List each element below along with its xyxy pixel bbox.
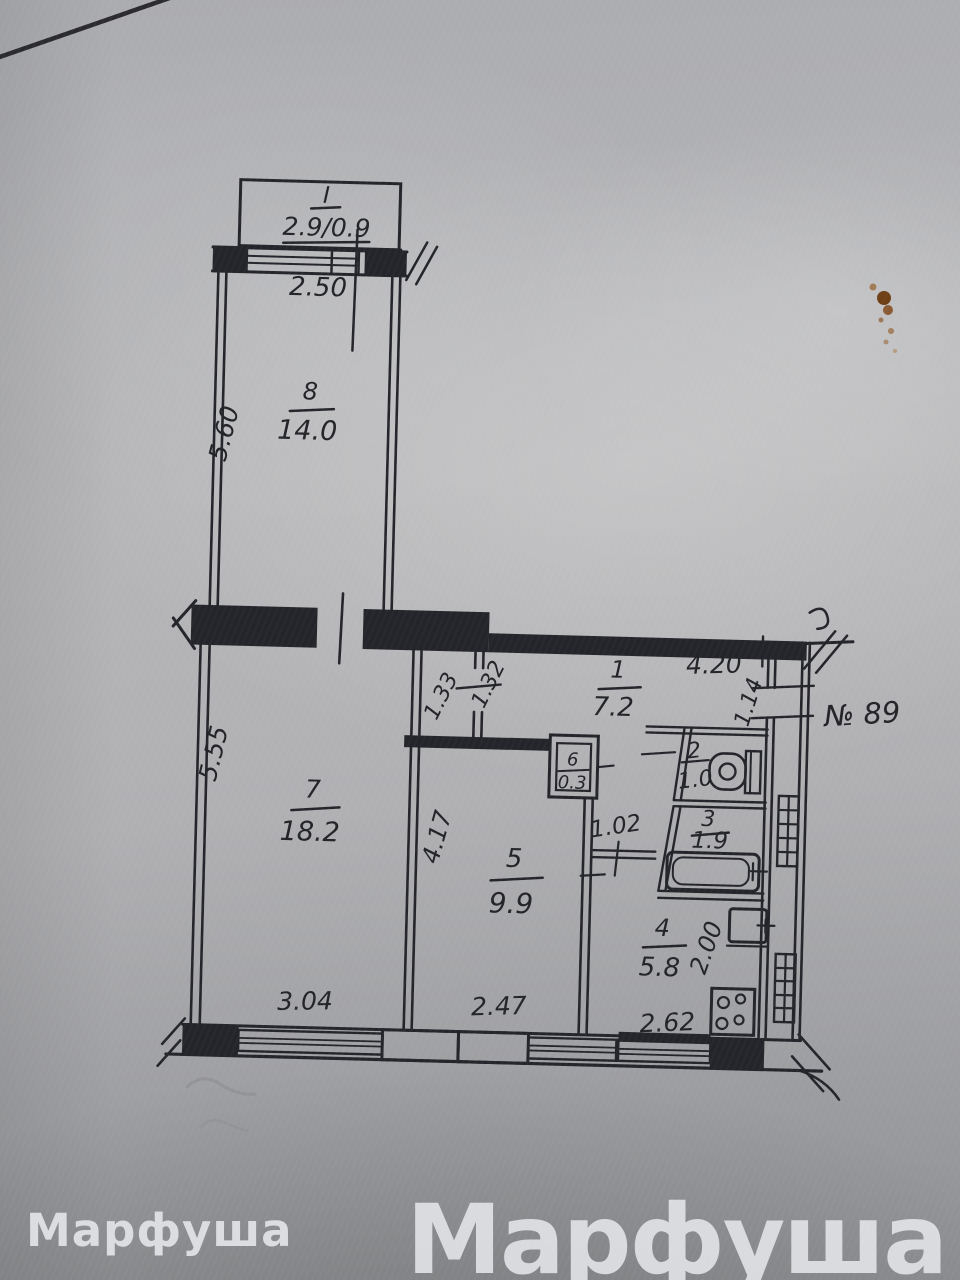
room7-bottom-dim: 3.04 xyxy=(277,986,333,1015)
closet6-number-label: 6 xyxy=(567,749,579,770)
balcony-width-label: 2.50 xyxy=(289,272,348,304)
hall-number-label: 1 xyxy=(610,655,626,683)
watermark-small: Марфуша xyxy=(26,1208,293,1253)
paper-fold-line xyxy=(0,0,184,59)
lobby-width-dim: 1.02 xyxy=(589,810,643,843)
room7-east-wall xyxy=(404,650,422,1030)
kitchen-bottom-dim: 2.62 xyxy=(639,1007,696,1038)
balcony-size-label: 2.9/0.9 xyxy=(282,212,371,243)
entry-door-dim: 1.14 xyxy=(730,675,769,729)
corridor-left-dim: 1.33 xyxy=(419,669,463,724)
middle-wall xyxy=(172,589,854,677)
outer-left-wall xyxy=(191,645,210,1025)
wc-area-label: 1.0 xyxy=(677,766,715,795)
room8-number-label: 8 xyxy=(302,377,318,405)
room7-area-label: 18.2 xyxy=(279,816,340,849)
kitchen-inner-dim: 2.00 xyxy=(684,918,728,978)
room5-area-label: 9.9 xyxy=(488,886,533,920)
hall-area-label: 7.2 xyxy=(592,692,634,723)
bathtub-icon xyxy=(666,852,767,892)
toilet-icon xyxy=(709,750,761,793)
corridor-right-dim: 1.32 xyxy=(467,657,511,712)
apartment-number-label: № 89 xyxy=(821,695,901,734)
room5-bottom-dim: 2.47 xyxy=(471,991,527,1021)
bottom-wall xyxy=(157,1018,840,1100)
room5-side-dim: 4.17 xyxy=(416,807,457,867)
bath-area-label: 1.9 xyxy=(691,828,728,855)
room5-number-label: 5 xyxy=(505,844,522,874)
window-symbol xyxy=(528,1037,617,1060)
lobby-wall xyxy=(591,850,655,859)
floor-plan-photo: I 2.9/0.9 2.50 8 14.0 5.60 7 18.2 5.55 3… xyxy=(0,0,960,1280)
room8-area-label: 14.0 xyxy=(277,415,338,448)
room7-number-label: 7 xyxy=(305,775,322,804)
kitchen-area-label: 5.8 xyxy=(638,952,680,983)
dimension-tick xyxy=(762,636,763,666)
stove-icon xyxy=(711,988,755,1035)
room8-side-dim: 5.60 xyxy=(203,403,245,464)
watermark-large: Марфуша xyxy=(406,1192,946,1280)
closet6-area-label: 0.3 xyxy=(558,772,587,794)
window-symbol xyxy=(238,1030,383,1055)
kitchen-number-label: 4 xyxy=(654,914,670,942)
faint-pencil-marks xyxy=(186,1079,256,1131)
room5-top-wall xyxy=(404,735,550,751)
vent-grid-icon xyxy=(777,796,799,866)
rust-stains xyxy=(870,284,898,354)
hall-top-dim: 4.20 xyxy=(686,649,742,679)
balcony-index-label: I xyxy=(323,183,331,209)
floor-plan-drawing: I 2.9/0.9 2.50 8 14.0 5.60 7 18.2 5.55 3… xyxy=(0,0,960,1280)
